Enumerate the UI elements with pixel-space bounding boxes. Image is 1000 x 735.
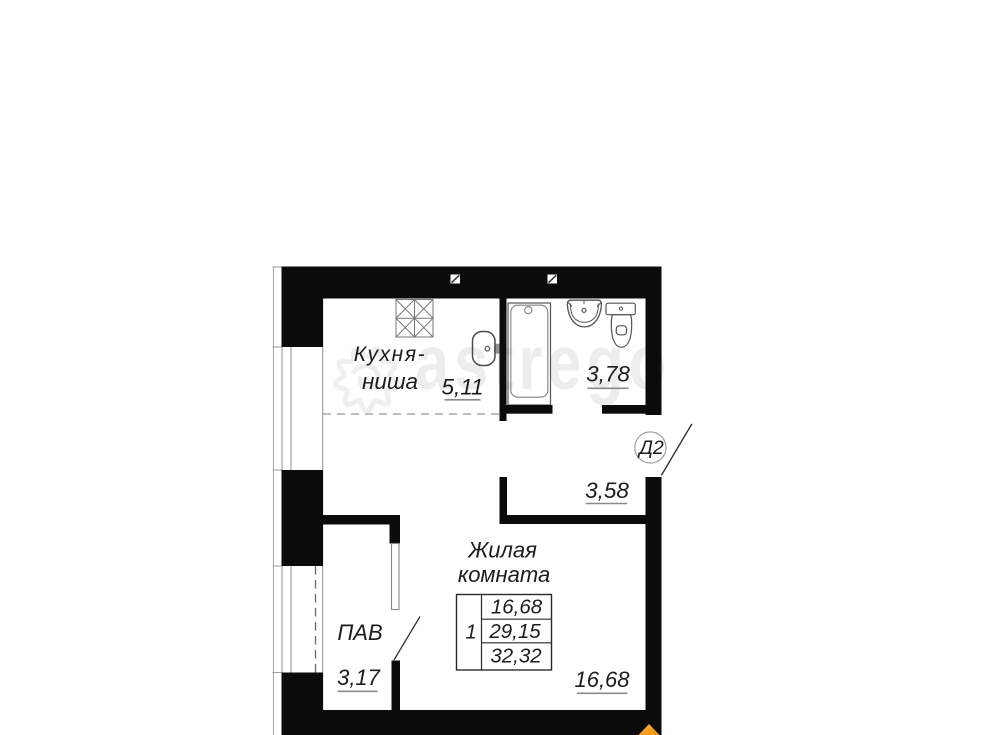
svg-text:3,17: 3,17 [337,665,381,690]
svg-text:16,68: 16,68 [491,596,543,619]
svg-text:1: 1 [465,622,476,644]
svg-text:16,68: 16,68 [574,667,630,692]
svg-text:ниша: ниша [362,369,418,394]
svg-text:комната: комната [458,562,550,587]
svg-text:32,32: 32,32 [490,645,542,668]
svg-text:3,58: 3,58 [585,478,629,503]
svg-text:29,15: 29,15 [488,620,541,643]
svg-text:5,11: 5,11 [441,375,483,400]
svg-text:Д2: Д2 [637,437,664,459]
svg-text:ПАВ: ПАВ [337,620,382,645]
svg-text:3,78: 3,78 [586,362,630,387]
svg-text:Жилая: Жилая [467,538,537,563]
svg-text:Кухня-: Кухня- [354,343,427,366]
